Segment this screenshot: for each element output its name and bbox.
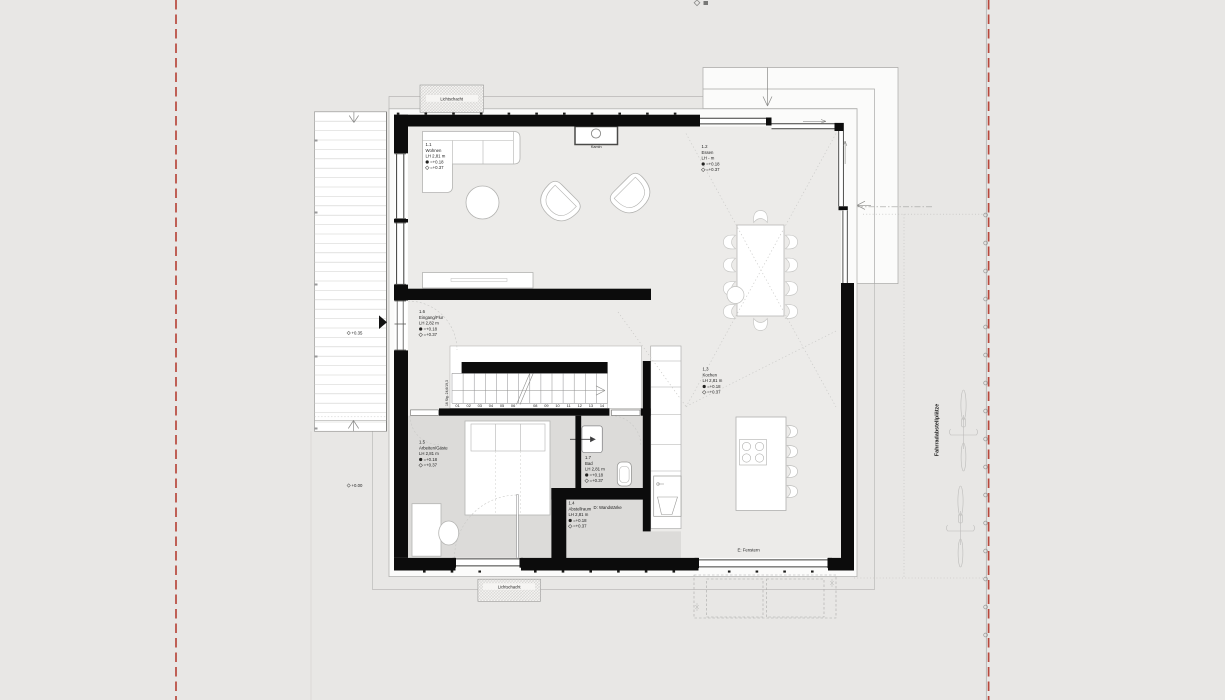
svg-text:06: 06 bbox=[511, 403, 515, 408]
svg-text:Abstellraum: Abstellraum bbox=[569, 506, 592, 511]
svg-text:1.6: 1.6 bbox=[419, 309, 426, 314]
svg-text:LH 2,82 m: LH 2,82 m bbox=[419, 321, 439, 326]
svg-text:1.2: 1.2 bbox=[702, 144, 709, 149]
svg-text:+0.35: +0.35 bbox=[352, 331, 363, 336]
svg-text:1.5: 1.5 bbox=[419, 440, 426, 445]
svg-text:=+0.37: =+0.37 bbox=[430, 165, 444, 170]
svg-text:+0.00: +0.00 bbox=[352, 483, 363, 488]
svg-text:Wohnen: Wohnen bbox=[426, 148, 443, 153]
svg-text:Arbeiten/Gäste: Arbeiten/Gäste bbox=[419, 445, 448, 450]
svg-text:D: Wandstärke: D: Wandstärke bbox=[594, 505, 623, 510]
svg-text:05: 05 bbox=[500, 403, 504, 408]
svg-text:=+0.37: =+0.37 bbox=[573, 524, 587, 529]
svg-text:Fahrradabstellplätze: Fahrradabstellplätze bbox=[935, 404, 941, 456]
svg-text:LH 2,81 m: LH 2,81 m bbox=[569, 512, 589, 517]
svg-text:01: 01 bbox=[455, 403, 459, 408]
svg-text:LH - m: LH - m bbox=[702, 156, 715, 161]
svg-text:LH 2,81 m: LH 2,81 m bbox=[703, 378, 723, 383]
svg-text:=+0.18: =+0.18 bbox=[430, 159, 444, 164]
svg-text:Essen: Essen bbox=[702, 150, 715, 155]
svg-text:=+0.18: =+0.18 bbox=[707, 384, 721, 389]
svg-text:Lichtschacht: Lichtschacht bbox=[498, 585, 522, 590]
svg-text:LH 2,81 m: LH 2,81 m bbox=[585, 467, 605, 472]
svg-text:12: 12 bbox=[578, 403, 582, 408]
svg-text:=+0.18: =+0.18 bbox=[573, 518, 587, 523]
svg-text:Kamin: Kamin bbox=[591, 145, 602, 149]
svg-text:13: 13 bbox=[589, 403, 593, 408]
svg-text:=+0.37: =+0.37 bbox=[424, 463, 438, 468]
svg-text:11: 11 bbox=[567, 403, 571, 408]
svg-text:E: Fenstern: E: Fenstern bbox=[738, 548, 761, 553]
svg-text:Kochen: Kochen bbox=[703, 372, 718, 377]
svg-text:=+0.18: =+0.18 bbox=[424, 326, 438, 331]
svg-text:=+0.18: =+0.18 bbox=[590, 472, 604, 477]
svg-text:08: 08 bbox=[533, 403, 537, 408]
svg-text:=+0.37: =+0.37 bbox=[590, 478, 604, 483]
svg-text:02: 02 bbox=[467, 403, 471, 408]
svg-text:=+0.37: =+0.37 bbox=[424, 332, 438, 337]
svg-text:Bad: Bad bbox=[585, 461, 593, 466]
svg-text:1.3: 1.3 bbox=[703, 367, 710, 372]
svg-text:03: 03 bbox=[478, 403, 482, 408]
svg-text:1.1: 1.1 bbox=[426, 142, 433, 147]
svg-text:09: 09 bbox=[544, 403, 548, 408]
svg-text:=+0.37: =+0.37 bbox=[706, 167, 720, 172]
svg-text:=+0.18: =+0.18 bbox=[706, 161, 720, 166]
svg-text:=+0.37: =+0.37 bbox=[707, 390, 721, 395]
svg-text:LH 2,81 m: LH 2,81 m bbox=[426, 154, 446, 159]
svg-text:1.7: 1.7 bbox=[585, 455, 592, 460]
svg-text:Lichtschacht: Lichtschacht bbox=[440, 97, 464, 102]
svg-text:LH 2,81 m: LH 2,81 m bbox=[419, 451, 439, 456]
svg-text:1.4: 1.4 bbox=[569, 501, 576, 506]
svg-text:=+0.18: =+0.18 bbox=[424, 457, 438, 462]
svg-text:Eingang/Flur: Eingang/Flur bbox=[419, 315, 444, 320]
svg-text:16 Stg. 24,6/19,3: 16 Stg. 24,6/19,3 bbox=[445, 380, 449, 406]
